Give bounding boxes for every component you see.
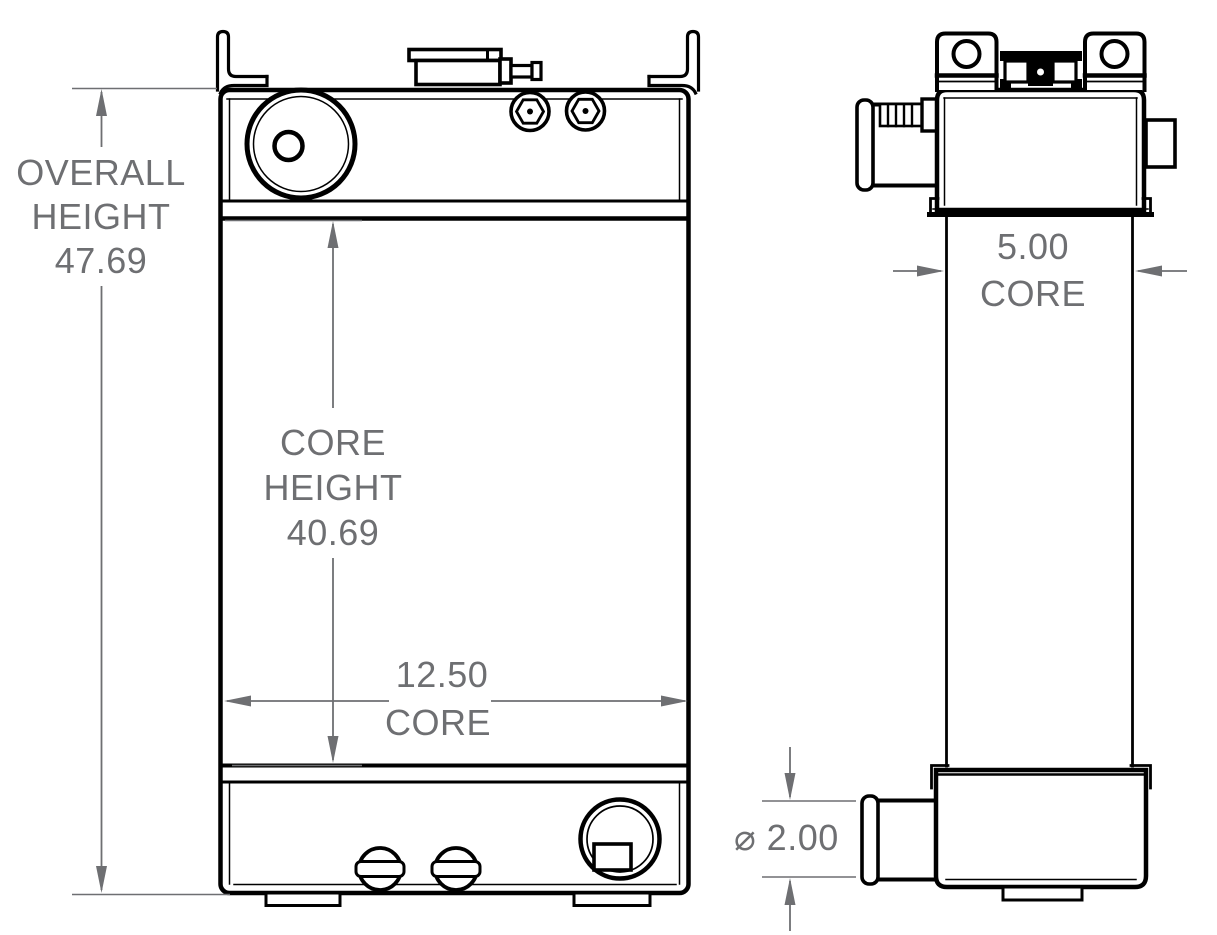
core-depth-unit-label: CORE [940,274,1126,314]
core-height-label-line1: CORE [240,420,426,465]
side-upper-inlet-tube-icon [857,99,938,190]
outlet-diameter-label: ⌀ 2.00 [734,818,884,858]
technical-drawing-canvas [0,0,1217,935]
lower-outlet-port-icon [581,800,660,879]
side-upper-fitting-icon [1146,120,1175,167]
side-view [857,34,1175,901]
side-filler-cap-icon [1000,51,1082,88]
core-width-unit-label: CORE [348,703,528,743]
filler-neck-cap-icon [409,50,541,85]
side-mounting-bracket-left-icon [937,34,997,91]
core-depth-value: 5.00 [940,227,1126,267]
mounting-bracket-top-right-icon [649,32,699,94]
technical-drawing-page: OVERALL HEIGHT 47.69 CORE HEIGHT 40.69 1… [0,0,1217,935]
mounting-foot-front-left [266,893,340,906]
overall-height-label: OVERALL HEIGHT 47.69 [8,151,194,283]
overall-height-label-line1: OVERALL [8,151,194,195]
upper-inlet-port-icon [247,90,355,198]
hex-fitting-right-icon [567,92,605,130]
drain-plug-right-icon [432,848,480,890]
mounting-foot-side [1003,887,1082,900]
overall-height-value: 47.69 [8,239,194,283]
core-height-label-line2: HEIGHT [240,465,426,510]
mounting-foot-front-right [574,893,650,906]
mounting-bracket-top-left-icon [218,32,268,94]
core-height-value: 40.69 [240,510,426,555]
side-bottom-tank [932,766,1151,888]
overall-height-label-line2: HEIGHT [8,195,194,239]
drain-plug-left-icon [356,848,404,890]
core-width-value: 12.50 [352,655,532,695]
hex-fitting-left-icon [511,93,549,131]
core-height-label: CORE HEIGHT 40.69 [240,420,426,555]
side-mounting-bracket-right-icon [1085,34,1145,91]
side-top-tank [930,90,1152,215]
